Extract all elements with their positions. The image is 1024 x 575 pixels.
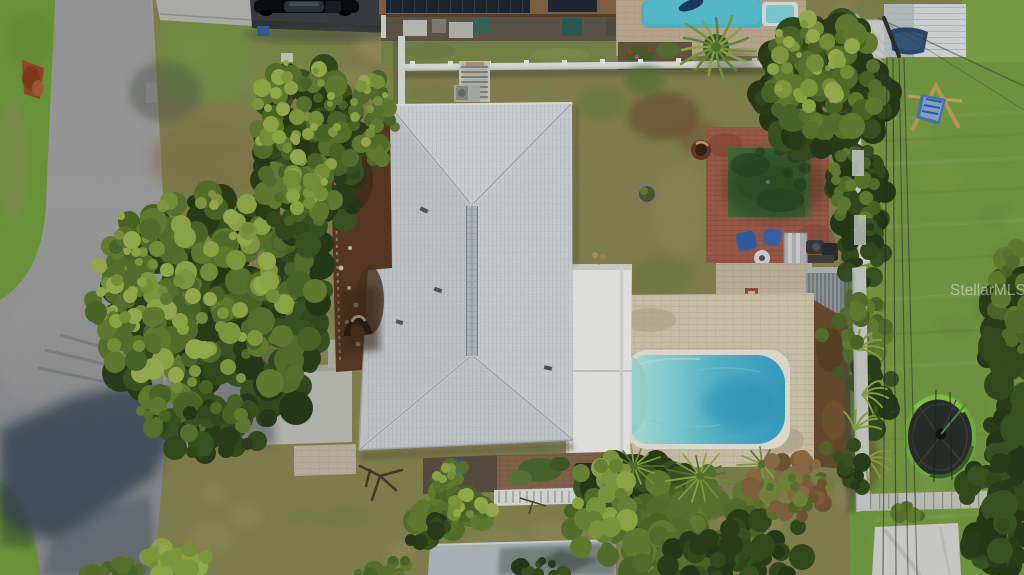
svg-text:StellarMLS: StellarMLS xyxy=(950,282,1024,299)
